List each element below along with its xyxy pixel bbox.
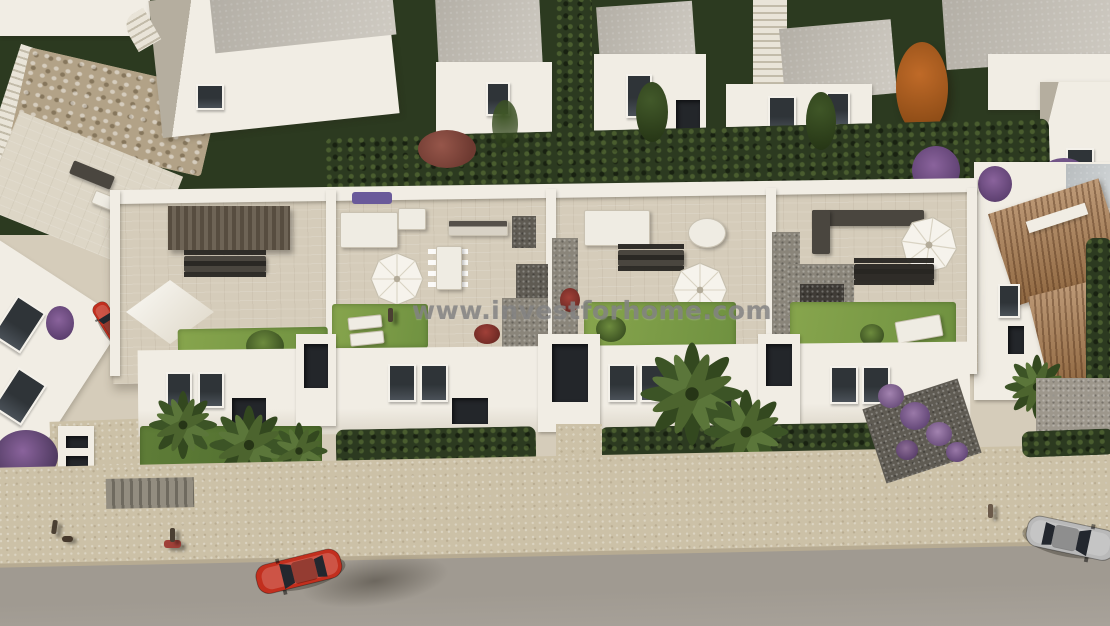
facade-window-5 xyxy=(608,364,636,402)
pedestrian-right xyxy=(988,504,993,518)
unit2-armchair xyxy=(398,208,426,230)
unit2-sofa xyxy=(340,212,398,248)
background-townhouse-1-window xyxy=(196,84,224,110)
villa-front-hedge xyxy=(1022,428,1110,457)
facade-window-4 xyxy=(420,364,448,402)
villa-window-2 xyxy=(1008,326,1024,354)
unit4-dining-chairs xyxy=(854,258,934,288)
villa-bougainvillea xyxy=(978,166,1012,202)
driveway-grate xyxy=(106,477,195,509)
unit4-stairbox xyxy=(800,284,844,304)
terrace-left-parapet xyxy=(110,190,120,376)
orange-autumn-tree xyxy=(896,42,948,134)
facade-terrace-door-2 xyxy=(452,398,488,424)
round-bush-3 xyxy=(926,422,952,446)
dog xyxy=(62,536,73,542)
left-building-bougainvillea xyxy=(46,306,74,340)
left-stair-vent-1 xyxy=(66,436,88,448)
unit2-person xyxy=(388,308,393,322)
unit1-dining-chairs xyxy=(184,250,266,280)
unit2-stairbox xyxy=(512,216,536,248)
round-bush-2 xyxy=(900,402,930,430)
unit2-purple-sofa xyxy=(352,192,392,204)
unit2-red-bush xyxy=(474,324,500,344)
unit3-sofa xyxy=(584,210,650,246)
unit2-dining-table xyxy=(436,246,462,290)
unit1-slatted-pergola xyxy=(168,206,290,250)
round-bush-1 xyxy=(878,384,904,408)
facade-window-7 xyxy=(830,366,858,404)
conifer-tree-2 xyxy=(636,82,668,142)
watermark-text: www.investforhome.com xyxy=(412,296,772,325)
conifer-tree-3 xyxy=(806,92,836,150)
left-building-window-2 xyxy=(0,367,47,426)
conifer-tree xyxy=(492,100,518,148)
alley-hedge-center xyxy=(556,0,592,148)
stair-tower-center-opening xyxy=(552,344,588,402)
unit2-bbq-counter xyxy=(448,220,508,236)
property-aerial-render: www.investforhome.com xyxy=(0,0,1110,626)
unit4-sofa-corner xyxy=(812,210,830,254)
round-bush-5 xyxy=(896,440,918,460)
stair-tower-1-opening xyxy=(304,344,328,388)
red-flowering-bush-back xyxy=(418,130,476,168)
facade-window-3 xyxy=(388,364,416,402)
stair-tower-3-opening xyxy=(766,344,792,386)
unit3-round-daybed xyxy=(688,218,726,248)
villa-window xyxy=(998,284,1020,318)
left-building-window xyxy=(0,295,46,354)
round-bush-4 xyxy=(946,442,968,462)
pedestrian-with-bicycle xyxy=(170,528,175,542)
